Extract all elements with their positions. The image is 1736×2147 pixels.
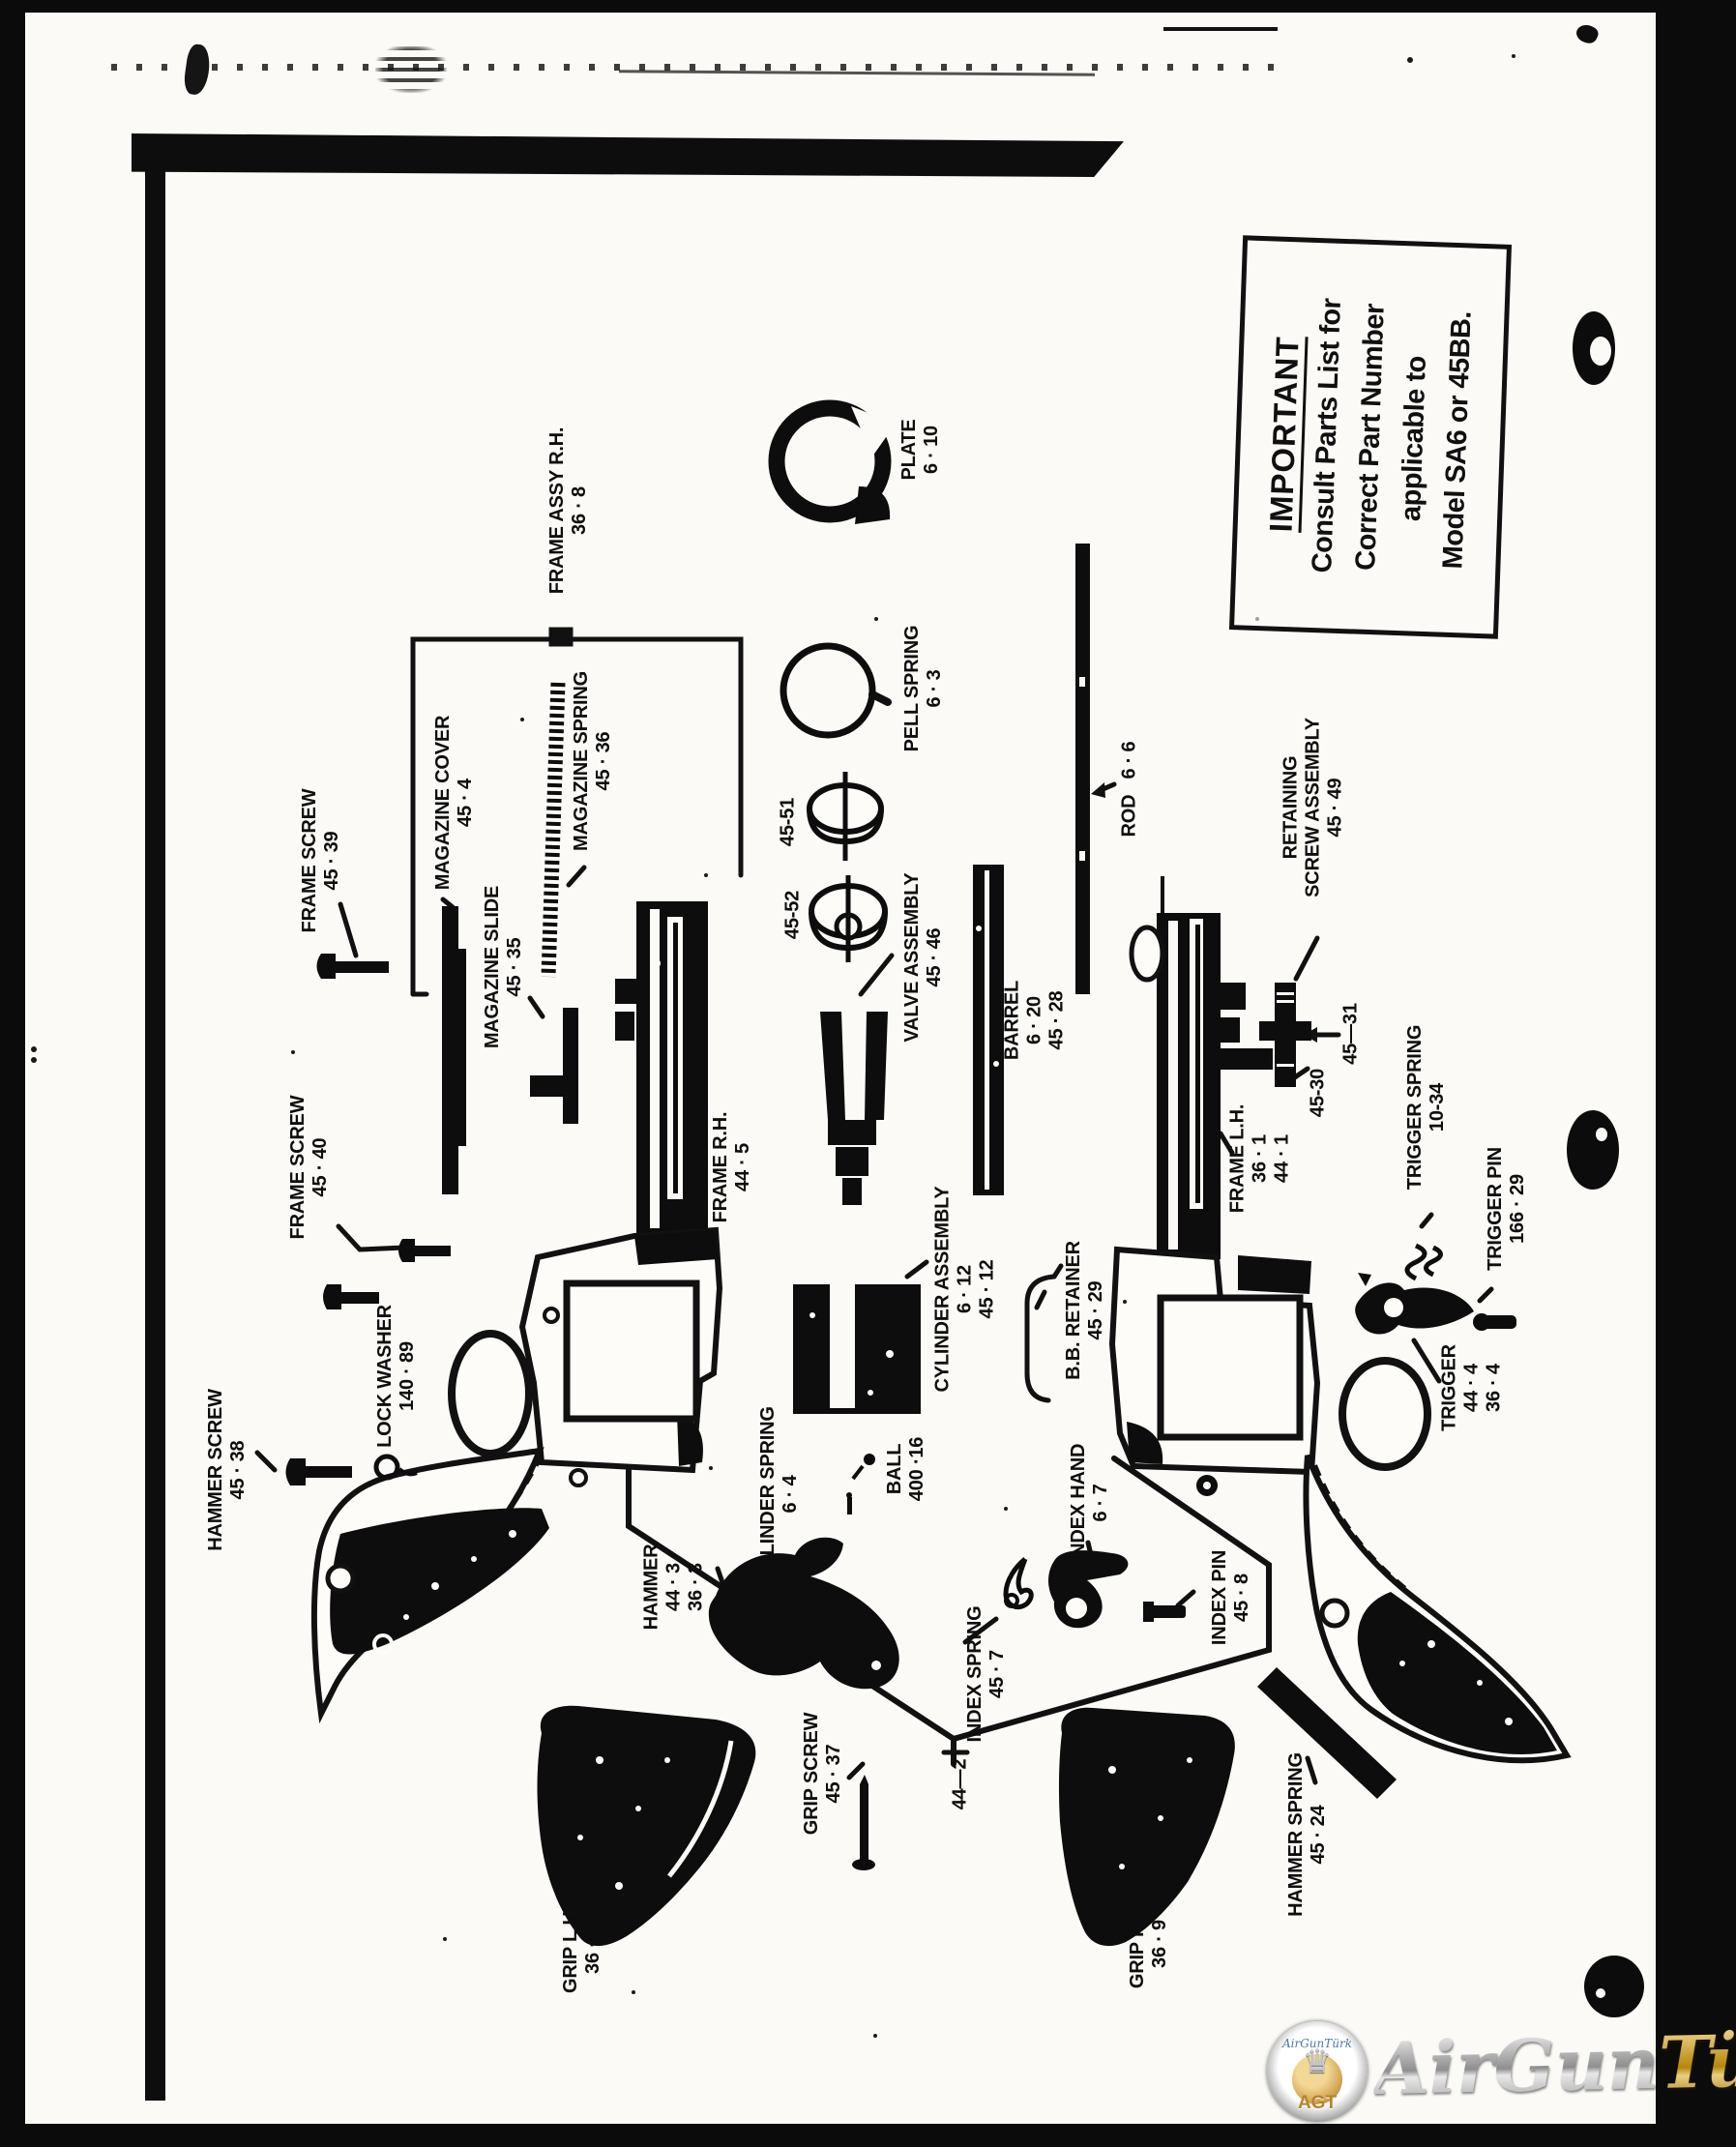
label-frame-rh: FRAME R.H.44 · 5 [710,1112,754,1223]
label-frame-screw-45-40: FRAME SCREW45 · 40 [287,1096,332,1240]
label-retaining-screw-assembly: RETAININGSCREW ASSEMBLY45 · 49 [1280,718,1347,897]
punch-hole-mark-2 [1567,1110,1619,1190]
label-45-31: 45—31 [1340,1003,1363,1065]
label-cylinder-spring: CYLINDER SPRING6 · 4 [757,1406,802,1581]
trigger-guard-right [1342,1361,1427,1467]
label-45-52: 45-52 [782,891,805,939]
lock-washer-part [376,1456,417,1478]
label-magazine-spring: MAGAZINE SPRING45 · 36 [571,671,615,851]
label-bb-retainer: B.B. RETAINER45 · 29 [1063,1241,1107,1380]
label-frame-screw-45-39: FRAME SCREW45 · 39 [299,789,343,933]
trigger-spring-part [1407,1246,1441,1279]
label-grip-screw: GRIP SCREW45 · 37 [801,1713,845,1836]
label-barrel: BARREL6 · 2045 · 28 [1002,981,1069,1060]
valve-washer-45-52 [811,875,885,962]
label-trigger-pin: TRIGGER PIN166 · 29 [1485,1147,1529,1271]
punch-hole-mark-1 [1573,311,1615,385]
cylinder-window [567,1283,696,1419]
label-hammer: HAMMER44 · 336 · 3 [641,1544,708,1631]
hammer-screw-part [286,1458,353,1485]
label-trigger-spring: TRIGGER SPRING10-34 [1404,1025,1449,1191]
cylinder-assembly-part [793,1284,921,1414]
magazine-cover-part [442,906,466,1194]
label-grip-rh: GRIP R.H.36 · 9 [1127,1899,1171,1988]
label-index-spring: INDEX SPRING45 · 7 [964,1606,1009,1743]
wordmark-airgun: AirGun [1372,2022,1660,2111]
valve-washer-45-51 [809,772,881,861]
label-valve-assembly: VALVE ASSEMBLY45 · 46 [901,872,946,1042]
label-45-30: 45-30 [1308,1069,1330,1117]
scan-thin-line-2 [1163,27,1278,31]
pell-spring-part [783,646,872,735]
index-spring-part [1006,1559,1031,1607]
label-lock-washer: LOCK WASHER140 · 89 [374,1305,419,1448]
magazine-slide-part [530,1008,578,1124]
frame-screw-39-part [317,954,390,979]
scan-border-top [0,0,1736,13]
grip-screw-part [852,1775,875,1870]
label-index-pin: INDEX PIN45 · 8 [1209,1550,1253,1645]
trigger-pin-part [1473,1313,1516,1331]
label-44-2: 44—2 [950,1759,972,1810]
hammer-part [709,1538,899,1690]
wordmark-turk: Türk [1658,2018,1736,2105]
label-magazine-cover: MAGAZINE COVER45 · 4 [432,716,477,891]
trigger-guard-left [452,1334,529,1454]
label-index-hand: INDEX HAND6 · 7 [1068,1444,1112,1562]
watermark-wordmark: AirGunTürk [1372,2018,1736,2111]
agt-badge-logo: AirGunTürk ♛ AGT [1267,2021,1368,2122]
label-trigger: TRIGGER44 · 436 · 4 [1439,1344,1506,1431]
label-magazine-slide: MAGAZINE SLIDE45 · 35 [482,886,526,1048]
label-ball: BALL400 ·16 [884,1437,928,1501]
ball-part [846,1454,875,1515]
important-notice-box: IMPORTANT Consult Parts List for Correct… [1229,235,1512,638]
label-hammer-screw: HAMMER SCREW45 · 38 [205,1389,250,1551]
rod-part [1075,544,1090,994]
bb-retainer-bracket [1027,1266,1061,1400]
punch-hole-mark-3 [1584,1956,1644,2017]
cylinder-window-lh [1161,1298,1300,1437]
scanned-parts-diagram-page: FRAME SCREW45 · 39 MAGAZINE COVER45 · 4 … [0,0,1736,2147]
label-frame-lh: FRAME L.H.36 · 144 · 1 [1227,1104,1294,1213]
label-rod: ROD 6 · 6 [1119,742,1141,838]
label-cylinder-assembly: CYLINDER ASSEMBLY6 · 1245 · 12 [932,1187,999,1393]
plate-part [777,406,896,524]
label-plate: PLATE6 · 10 [898,419,943,480]
barrel-part [973,865,1004,1195]
label-frame-assy-rh: FRAME ASSY R.H.36 · 8 [546,427,591,595]
ink-hash-smudge [375,44,447,93]
badge-crown-icon: ♛ [1267,2043,1368,2081]
important-notice-text: IMPORTANT Consult Parts List for Correct… [1240,247,1500,629]
label-grip-lh: GRIP L.H.36 · 5 [560,1906,604,1993]
trigger-part [1355,1273,1474,1335]
scan-border-right [1656,0,1736,2147]
valve-assembly-part [820,1012,888,1205]
label-45-51: 45-51 [778,798,800,846]
airgunturk-watermark: AirGunTürk ♛ AGT AirGunTürk [1250,2014,1733,2139]
scan-border-left [0,0,25,2147]
page-frame-rule-vertical [145,145,165,2101]
label-pell-spring: PELL SPRING6 · 3 [901,626,946,752]
magazine-spring-part [548,683,558,977]
label-hammer-spring: HAMMER SPRING45 · 24 [1285,1752,1330,1917]
badge-agt-text: AGT [1267,2093,1368,2114]
